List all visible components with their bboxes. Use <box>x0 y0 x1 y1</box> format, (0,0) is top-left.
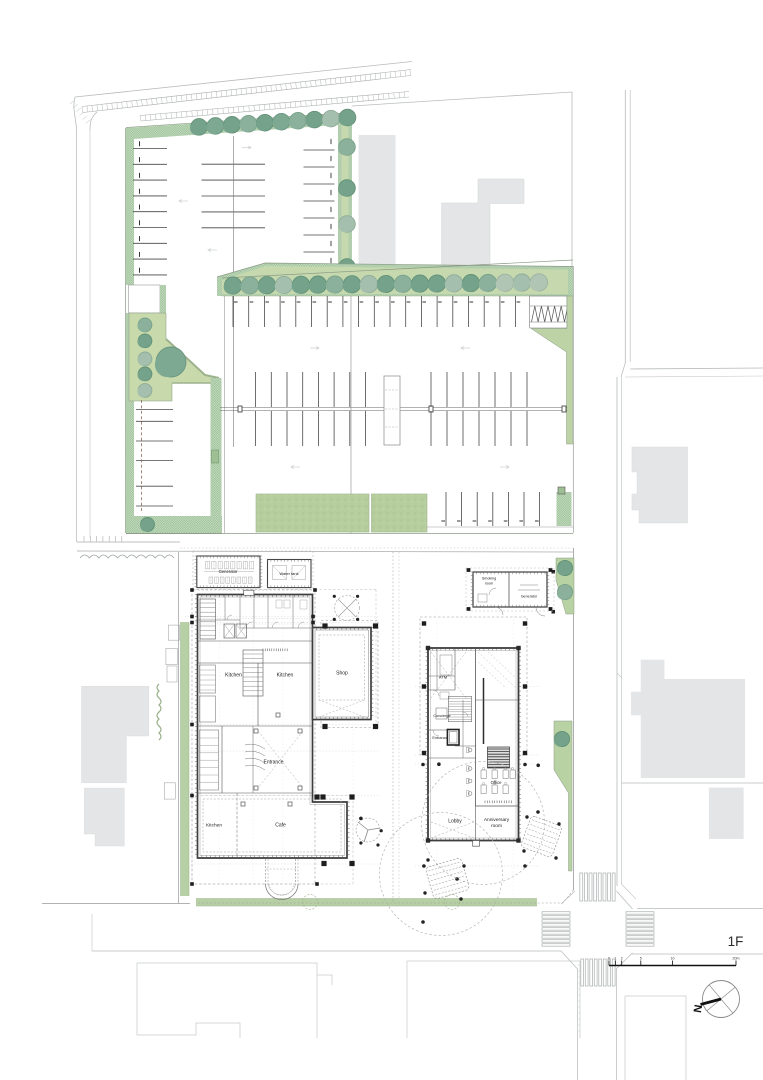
svg-text:ATM: ATM <box>439 675 447 680</box>
svg-text:1: 1 <box>614 957 616 961</box>
svg-text:20m: 20m <box>733 957 740 961</box>
svg-text:Water tank: Water tank <box>279 571 298 576</box>
svg-text:Anniversary: Anniversary <box>484 817 510 823</box>
svg-text:Kitchen: Kitchen <box>225 673 242 679</box>
svg-text:0: 0 <box>608 957 610 961</box>
svg-text:Lobby: Lobby <box>448 819 462 825</box>
svg-text:Kitchen: Kitchen <box>206 823 222 829</box>
svg-text:Entrance: Entrance <box>432 736 447 740</box>
svg-text:Cafe: Cafe <box>275 823 286 829</box>
svg-text:1F: 1F <box>728 934 744 949</box>
svg-text:room: room <box>485 582 493 586</box>
svg-text:Entrance: Entrance <box>263 760 283 766</box>
svg-text:room: room <box>491 823 502 829</box>
svg-text:Shop: Shop <box>336 671 348 677</box>
svg-text:10: 10 <box>671 957 675 961</box>
svg-text:Office: Office <box>491 780 503 785</box>
svg-text:Smoking: Smoking <box>482 577 496 581</box>
svg-text:2: 2 <box>621 957 623 961</box>
svg-text:5: 5 <box>640 957 642 961</box>
svg-text:Generator: Generator <box>521 595 538 599</box>
svg-text:Concierge: Concierge <box>433 714 450 718</box>
svg-text:Kitchen: Kitchen <box>277 673 294 679</box>
svg-text:Generator: Generator <box>219 569 238 574</box>
